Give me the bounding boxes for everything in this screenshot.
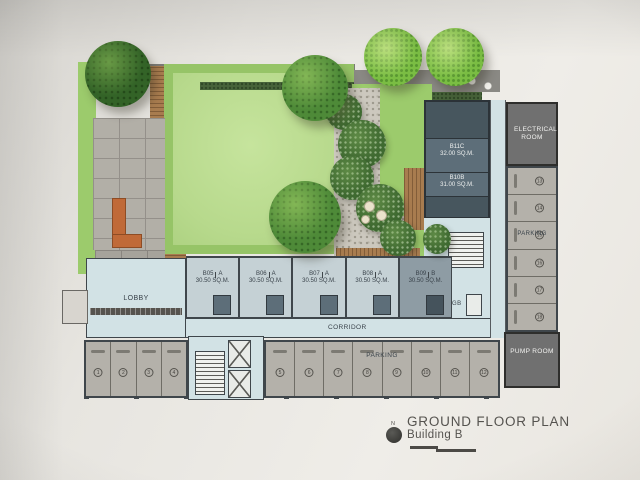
parking-number: 10 bbox=[421, 368, 430, 377]
unit-area: 30.50 SQ.M. bbox=[187, 278, 238, 285]
upper-block-top-room bbox=[426, 102, 488, 139]
unit-area: 30.50 SQ.M. bbox=[400, 278, 451, 285]
unit-wall-divider bbox=[428, 272, 429, 278]
unit-b11c-label: B11C 32.00 SQ.M. bbox=[426, 144, 488, 158]
unit-room: B05 A 30.50 SQ.M. bbox=[186, 257, 239, 318]
parking-stall: 16 bbox=[508, 250, 556, 277]
unit-id: B08 bbox=[362, 271, 373, 278]
unit-room: B06 A 30.50 SQ.M. bbox=[239, 257, 292, 318]
stairs-lower bbox=[195, 351, 225, 395]
unit-bathroom bbox=[213, 295, 231, 315]
upper-block-bottom-room bbox=[426, 196, 488, 217]
unit-wall-divider bbox=[322, 272, 323, 278]
tree bbox=[364, 28, 422, 86]
lobby: LOBBY bbox=[86, 258, 186, 338]
parking-number: 12 bbox=[479, 368, 488, 377]
parking-stall: 17 bbox=[508, 277, 556, 304]
tree bbox=[426, 28, 484, 86]
unit-header: B07 A bbox=[293, 271, 344, 278]
unit-bathroom bbox=[426, 295, 444, 315]
parking-stall: 1 bbox=[86, 342, 111, 396]
tree bbox=[85, 41, 151, 107]
side-parking-label: PARKING bbox=[506, 231, 558, 237]
parking-right-section: 5 6 7 8 9 10 11 12 bbox=[264, 340, 500, 398]
parking-left-section: 1 2 3 4 bbox=[84, 340, 188, 398]
parking-stall: 7 bbox=[324, 342, 353, 396]
wheel-stop bbox=[514, 174, 517, 188]
parking-number: 1 bbox=[94, 368, 103, 377]
plan-title: GROUND FLOOR PLAN bbox=[407, 414, 570, 429]
paver-terrace bbox=[93, 118, 165, 250]
parking-number: 14 bbox=[535, 204, 544, 213]
garbage-room bbox=[466, 294, 482, 316]
parking-stall: 13 bbox=[508, 168, 556, 195]
pump-room: PUMP ROOM bbox=[504, 332, 560, 388]
wheel-stop bbox=[514, 310, 517, 324]
stool bbox=[364, 201, 375, 212]
north-icon bbox=[386, 427, 402, 443]
unit-area: 32.00 SQ.M. bbox=[426, 151, 488, 158]
unit-bathroom bbox=[373, 295, 391, 315]
wheel-stop bbox=[142, 350, 156, 353]
wheel-stop bbox=[91, 350, 105, 353]
unit-wall-divider bbox=[215, 272, 216, 278]
parking-stall: 2 bbox=[111, 342, 136, 396]
unit-area: 30.50 SQ.M. bbox=[347, 278, 398, 285]
parking-number: 13 bbox=[535, 177, 544, 186]
pump-room-label: PUMP ROOM bbox=[506, 348, 558, 356]
scale-bar bbox=[410, 446, 438, 449]
unit-room: B08 A 30.50 SQ.M. bbox=[346, 257, 399, 318]
unit-area: 31.00 SQ.M. bbox=[426, 182, 488, 189]
unit-id: B05 bbox=[203, 271, 214, 278]
plan-subtitle: Building B bbox=[407, 429, 463, 441]
parking-number: 17 bbox=[535, 285, 544, 294]
stool bbox=[376, 210, 387, 221]
unit-header: B06 A bbox=[240, 271, 291, 278]
unit-row: B05 A 30.50 SQ.M. B06 A 30.50 SQ.M. B07 … bbox=[186, 256, 452, 318]
elevator bbox=[228, 370, 251, 398]
wheel-stop bbox=[514, 283, 517, 297]
parking-stall: 11 bbox=[441, 342, 470, 396]
parking-number: 2 bbox=[119, 368, 128, 377]
parking-stall: 8 bbox=[353, 342, 382, 396]
scale-bar bbox=[436, 449, 476, 452]
shrub bbox=[423, 224, 451, 254]
parking-stall: 5 bbox=[266, 342, 295, 396]
lobby-label: LOBBY bbox=[87, 295, 185, 302]
electrical-room: ELECTRICAL ROOM bbox=[506, 102, 558, 166]
unit-id: B06 bbox=[256, 271, 267, 278]
unit-bathroom bbox=[266, 295, 284, 315]
unit-room: B09 B 30.50 SQ.M. bbox=[399, 257, 452, 318]
wheel-stop bbox=[167, 350, 181, 353]
unit-area: 30.50 SQ.M. bbox=[240, 278, 291, 285]
wheel-stop bbox=[116, 350, 130, 353]
parking-number: 3 bbox=[144, 368, 153, 377]
unit-id: B11C bbox=[426, 144, 488, 151]
unit-type: A bbox=[272, 271, 276, 278]
unit-type: B bbox=[431, 271, 435, 278]
entry-canopy bbox=[62, 290, 88, 324]
parking-number: 8 bbox=[363, 368, 372, 377]
unit-b10b-label: B10B 31.00 SQ.M. bbox=[426, 172, 488, 189]
parking-number: 6 bbox=[305, 368, 314, 377]
tree bbox=[282, 55, 348, 121]
unit-type: A bbox=[218, 271, 222, 278]
unit-id: B10B bbox=[426, 175, 488, 182]
unit-area: 30.50 SQ.M. bbox=[293, 278, 344, 285]
parking-number: 4 bbox=[169, 368, 178, 377]
parking-number: 11 bbox=[450, 368, 459, 377]
parking-number: 7 bbox=[334, 368, 343, 377]
vertical-corridor bbox=[490, 100, 506, 338]
garbage-room-label: GB bbox=[452, 301, 461, 307]
parking-number: 18 bbox=[535, 312, 544, 321]
corridor-label: CORRIDOR bbox=[328, 324, 367, 331]
parking-stall: 4 bbox=[162, 342, 186, 396]
wood-bench bbox=[404, 168, 424, 230]
side-parking-column: 13 14 15 16 17 18 bbox=[506, 166, 558, 332]
unit-header: B05 A bbox=[187, 271, 238, 278]
parking-number: 16 bbox=[535, 258, 544, 267]
unit-room: B07 A 30.50 SQ.M. bbox=[292, 257, 345, 318]
upper-unit-block: B11C 32.00 SQ.M. B10B 31.00 SQ.M. bbox=[424, 100, 490, 218]
unit-wall-divider bbox=[375, 272, 376, 278]
corridor: CORRIDOR bbox=[186, 318, 490, 338]
floor-plan-photo: B11C 32.00 SQ.M. B10B 31.00 SQ.M. ELECTR… bbox=[0, 0, 640, 480]
tree bbox=[269, 181, 341, 253]
lobby-window-wall bbox=[90, 308, 182, 315]
shrub bbox=[380, 220, 416, 256]
stool bbox=[361, 215, 370, 224]
parking-stall: 3 bbox=[137, 342, 162, 396]
unit-type: A bbox=[325, 271, 329, 278]
electrical-room-label: ELECTRICAL ROOM bbox=[508, 126, 556, 142]
parking-stall: 6 bbox=[295, 342, 324, 396]
elevator bbox=[228, 340, 251, 368]
core-stair-elevator-block bbox=[188, 336, 264, 400]
parking-number: 9 bbox=[392, 368, 401, 377]
parking-stall: 9 bbox=[383, 342, 412, 396]
unit-bathroom bbox=[320, 295, 338, 315]
parking-stall: 18 bbox=[508, 304, 556, 330]
unit-wall-divider bbox=[269, 272, 270, 278]
unit-id: B07 bbox=[309, 271, 320, 278]
parking-stall: 10 bbox=[412, 342, 441, 396]
parking-number: 5 bbox=[276, 368, 285, 377]
stairs-upper bbox=[448, 232, 484, 268]
parking-stall: 14 bbox=[508, 195, 556, 222]
bench-orange-horizontal bbox=[112, 234, 142, 248]
unit-id: B09 bbox=[416, 271, 427, 278]
wheel-stop bbox=[514, 256, 517, 270]
unit-type: A bbox=[378, 271, 382, 278]
bottom-parking-label: PARKING bbox=[264, 352, 500, 359]
parking-stall: 12 bbox=[470, 342, 498, 396]
wheel-stop bbox=[514, 201, 517, 215]
unit-header: B09 B bbox=[400, 271, 451, 278]
unit-header: B08 A bbox=[347, 271, 398, 278]
